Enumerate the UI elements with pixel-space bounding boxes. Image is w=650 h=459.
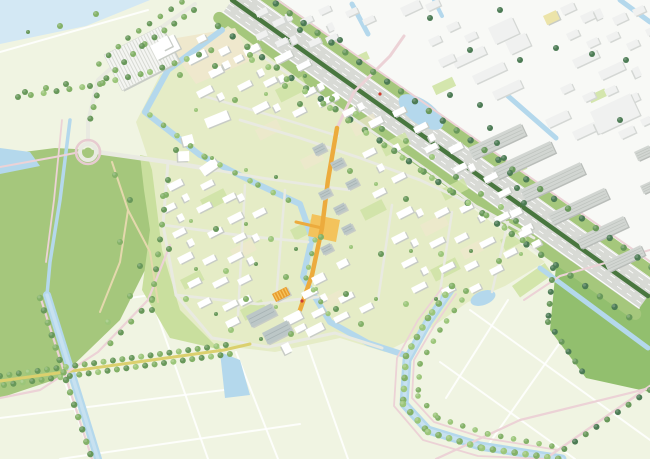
tree-highlight [511,436,514,439]
tree-highlight [254,262,256,264]
tree-highlight [303,89,306,92]
tree-highlight [349,245,351,247]
tree-highlight [403,364,406,367]
tree-highlight [549,277,552,280]
tree-highlight [422,426,425,429]
tree [127,197,133,203]
tree [496,258,502,264]
tree [384,78,390,84]
tree [130,51,136,57]
tree [177,72,183,78]
tree-highlight [583,432,586,435]
tree [615,409,621,415]
tree [114,367,120,373]
tree-highlight [417,375,420,378]
tree-highlight [552,196,555,199]
tree [553,45,559,51]
tree [45,320,51,326]
tree [514,185,520,191]
tree [117,239,123,245]
tree-highlight [224,268,227,271]
tree-highlight [518,57,521,60]
tree-highlight [124,366,127,369]
tree [274,305,278,309]
tree [138,354,144,360]
tree [264,92,268,96]
tree [561,446,567,452]
tree [259,54,265,60]
tree-highlight [615,410,618,413]
tree-highlight [158,237,161,240]
tree [284,76,290,82]
tree-highlight [116,44,119,47]
tree [511,449,518,456]
tree [39,377,45,383]
tree [500,448,507,455]
tree [478,191,484,197]
tree-highlight [311,288,314,291]
tree [467,47,473,53]
tree-highlight [425,350,428,353]
tree [159,222,165,228]
tree-highlight [230,34,233,37]
tree [75,414,81,420]
tree [501,155,507,161]
tree [579,215,585,221]
tree [121,59,127,65]
tree-highlight [214,312,216,314]
tree [196,52,202,58]
tree [444,318,450,324]
tree-highlight [245,44,248,47]
tree [522,451,529,458]
tree-highlight [546,313,549,316]
tree [125,35,131,41]
tree [414,334,421,341]
tree-highlight [406,159,409,162]
tree-highlight [425,403,428,406]
tree-highlight [63,364,66,367]
tree [447,187,453,193]
tree [151,281,157,287]
tree-highlight [256,183,259,186]
tree [106,53,112,59]
tree-highlight [214,344,217,347]
tree [442,292,449,299]
tree-highlight [425,429,428,432]
tree-highlight [229,327,232,330]
roundabout-island [84,148,93,157]
tree-highlight [113,78,116,81]
tree-highlight [328,105,331,108]
tree [142,363,148,369]
tree-highlight [318,96,321,99]
tree-highlight [468,138,471,141]
tree [147,112,153,118]
tree [20,379,26,385]
tree [188,143,194,149]
tree [549,443,555,449]
tree-highlight [426,108,429,111]
tree [374,182,378,186]
tree-highlight [101,359,104,362]
tree [407,409,414,416]
tree [170,359,176,365]
tree [127,293,133,299]
tree-highlight [16,94,19,97]
tree-highlight [233,171,236,174]
tree [227,351,233,357]
tree-highlight [118,330,121,333]
tree [180,357,186,363]
tree [509,231,515,237]
tree-highlight [64,81,67,84]
tree [15,94,21,100]
tree-highlight [166,177,169,180]
tree-highlight [306,265,309,268]
tree-highlight [304,276,307,279]
tree-highlight [180,358,183,361]
tree-highlight [96,370,99,373]
tree-highlight [473,428,476,431]
tree-highlight [430,154,433,157]
tree-highlight [97,62,100,65]
tree-highlight [573,439,576,442]
tree-highlight [402,375,405,378]
tree-highlight [520,238,523,241]
tree [447,92,453,98]
tree-highlight [150,307,153,310]
tree-highlight [508,170,511,173]
tree-highlight [400,401,403,404]
tree-highlight [436,179,439,182]
tree [152,34,158,40]
tree-highlight [359,321,362,324]
tree-highlight [524,439,527,442]
tree [318,299,323,304]
tree [35,368,41,374]
tree-highlight [266,65,269,68]
tree [370,69,376,75]
tree-highlight [128,197,131,200]
tree-highlight [133,364,136,367]
tree [353,111,359,117]
tree-highlight [434,297,436,299]
tree-highlight [329,40,332,43]
tree [521,200,527,206]
tree-highlight [522,200,525,203]
tree [572,358,578,364]
tree [53,344,59,350]
tree [517,57,523,63]
tree-highlight [454,174,457,177]
tree [463,288,469,294]
tree [244,222,248,226]
tree-highlight [448,92,451,95]
tree-highlight [184,56,187,59]
tree [54,88,60,94]
tree [416,374,422,380]
tree [215,23,221,29]
tree-highlight [284,77,287,80]
tree [149,297,155,303]
tree [456,438,463,445]
tree-highlight [273,1,276,4]
tree [159,65,165,71]
tree [435,179,441,185]
tree [152,361,158,367]
tree [469,249,473,253]
tree [161,27,167,33]
tree-highlight [403,353,406,356]
tree-highlight [510,167,513,170]
building-roof [178,151,189,161]
tree [417,361,423,367]
tree-highlight [122,60,125,63]
tree-highlight [482,147,485,150]
tree [149,307,155,313]
tree-highlight [294,247,296,249]
tree-highlight [91,105,94,108]
tree-highlight [362,127,365,130]
tree-highlight [559,339,562,342]
tree-highlight [209,48,212,51]
tree-highlight [404,196,407,199]
tree [597,293,603,299]
tree-highlight [573,359,576,362]
tree [67,389,73,395]
tree-highlight [446,435,449,438]
tree-highlight [76,414,79,417]
tree-highlight [524,177,527,180]
tree [524,438,530,444]
tree [208,47,214,53]
tree [626,402,632,408]
tree [626,314,632,320]
tree-highlight [627,315,630,318]
tree-highlight [283,83,286,86]
tree-highlight [148,113,151,116]
tree-highlight [313,238,316,241]
tree-highlight [92,361,95,364]
tree-highlight [479,445,482,448]
tree-highlight [431,339,434,342]
tree [497,7,503,13]
tree [136,28,142,34]
tree-highlight [326,312,329,315]
tree [119,356,125,362]
tree [424,350,430,356]
tree [314,30,320,36]
tree [41,307,47,313]
tree [139,308,145,314]
tree [228,327,234,333]
tree-highlight [244,168,246,170]
tree-highlight [169,7,172,10]
tree [103,75,109,81]
tree [449,283,456,290]
tree-highlight [162,361,165,364]
tree [214,312,218,316]
tree [168,6,174,12]
tree-highlight [565,206,568,209]
tree [467,137,473,143]
tree-highlight [105,368,108,371]
tree [342,49,348,55]
tree-highlight [495,221,498,224]
tree-highlight [190,357,193,360]
tree-highlight [452,308,455,311]
tree-highlight [612,304,615,307]
tree-highlight [550,444,553,447]
tree [446,435,453,442]
tree [270,190,276,196]
tree [243,296,249,302]
tree-highlight [618,117,621,120]
tree-highlight [568,273,571,276]
tree-highlight [45,320,48,323]
tree [403,196,409,202]
tree [306,265,311,270]
tree-highlight [400,155,403,158]
tree [274,175,278,179]
tree-highlight [80,85,83,88]
tree [337,37,343,43]
tree-highlight [548,289,551,292]
tree-highlight [502,225,505,228]
tree [465,200,471,206]
tree-highlight [161,123,164,126]
tree [327,105,333,111]
tree [472,427,478,433]
tree [328,39,334,45]
tree [477,102,483,108]
tree-highlight [67,87,70,90]
tree-highlight [298,101,301,104]
tree [479,445,486,452]
tree [537,186,543,192]
tree-highlight [213,63,216,66]
tree-highlight [108,341,111,344]
tree [139,43,145,49]
tree-highlight [338,37,341,40]
tree-highlight [174,147,177,150]
tree [217,352,223,358]
tree-highlight [440,118,443,121]
tree-highlight [274,175,276,177]
tree-highlight [156,252,159,255]
tree-highlight [374,297,376,299]
tree-highlight [210,156,212,158]
tree-highlight [227,351,230,354]
tree-highlight [501,448,504,451]
tree [157,351,163,357]
tree [401,375,408,382]
tree-highlight [545,454,548,457]
tree [400,155,406,161]
tree-highlight [176,349,179,352]
tree [513,218,519,224]
tree-highlight [172,21,175,24]
tree [82,361,88,367]
tree-highlight [192,7,195,10]
tree-highlight [158,352,161,355]
tree [593,424,599,430]
tree-highlight [244,296,247,299]
tree-highlight [374,182,376,184]
tree [437,327,443,333]
tree-highlight [538,186,541,189]
tree [545,319,551,325]
tree-highlight [274,65,277,68]
tree-highlight [449,283,452,286]
tree [593,225,599,231]
tree-highlight [428,15,431,18]
tree-highlight [287,11,290,14]
tree [223,342,229,348]
tree-highlight [115,367,118,370]
tree-highlight [138,72,141,75]
tree-highlight [303,74,305,76]
tree-highlight [486,432,489,435]
tree [173,147,179,153]
tree-highlight [203,155,206,158]
tree-highlight [404,301,407,304]
tree-highlight [20,380,23,383]
tree-highlight [118,239,121,242]
tree [523,176,529,182]
tree-highlight [392,148,395,151]
tree [538,252,544,258]
tree [232,97,238,103]
tree-highlight [248,178,251,181]
tree [427,15,433,21]
tree-highlight [635,255,638,258]
tree [87,83,93,89]
tree-highlight [551,265,554,268]
tree-highlight [319,300,322,303]
tree [129,355,135,361]
tree-highlight [147,21,150,24]
tree [431,338,437,344]
tree-highlight [152,362,155,365]
tree [105,319,111,325]
tree-highlight [106,319,109,322]
tree-highlight [579,216,582,219]
tree [579,368,585,374]
tree-highlight [298,27,301,30]
tree-highlight [140,43,143,46]
tree-highlight [209,354,212,357]
tree-highlight [120,357,123,360]
tree [157,236,163,242]
tree [398,88,404,94]
tree [202,154,208,160]
tree-highlight [88,116,91,119]
tree [424,403,430,409]
tree-highlight [197,52,200,55]
tree [333,306,339,312]
tree [349,245,353,249]
tree-highlight [286,198,289,201]
tree [247,178,253,184]
tree-highlight [171,359,174,362]
red-marker [378,92,381,95]
tree-highlight [348,168,351,171]
tree-highlight [72,402,75,405]
masterplan-stage [0,0,650,459]
tree-highlight [194,108,196,110]
